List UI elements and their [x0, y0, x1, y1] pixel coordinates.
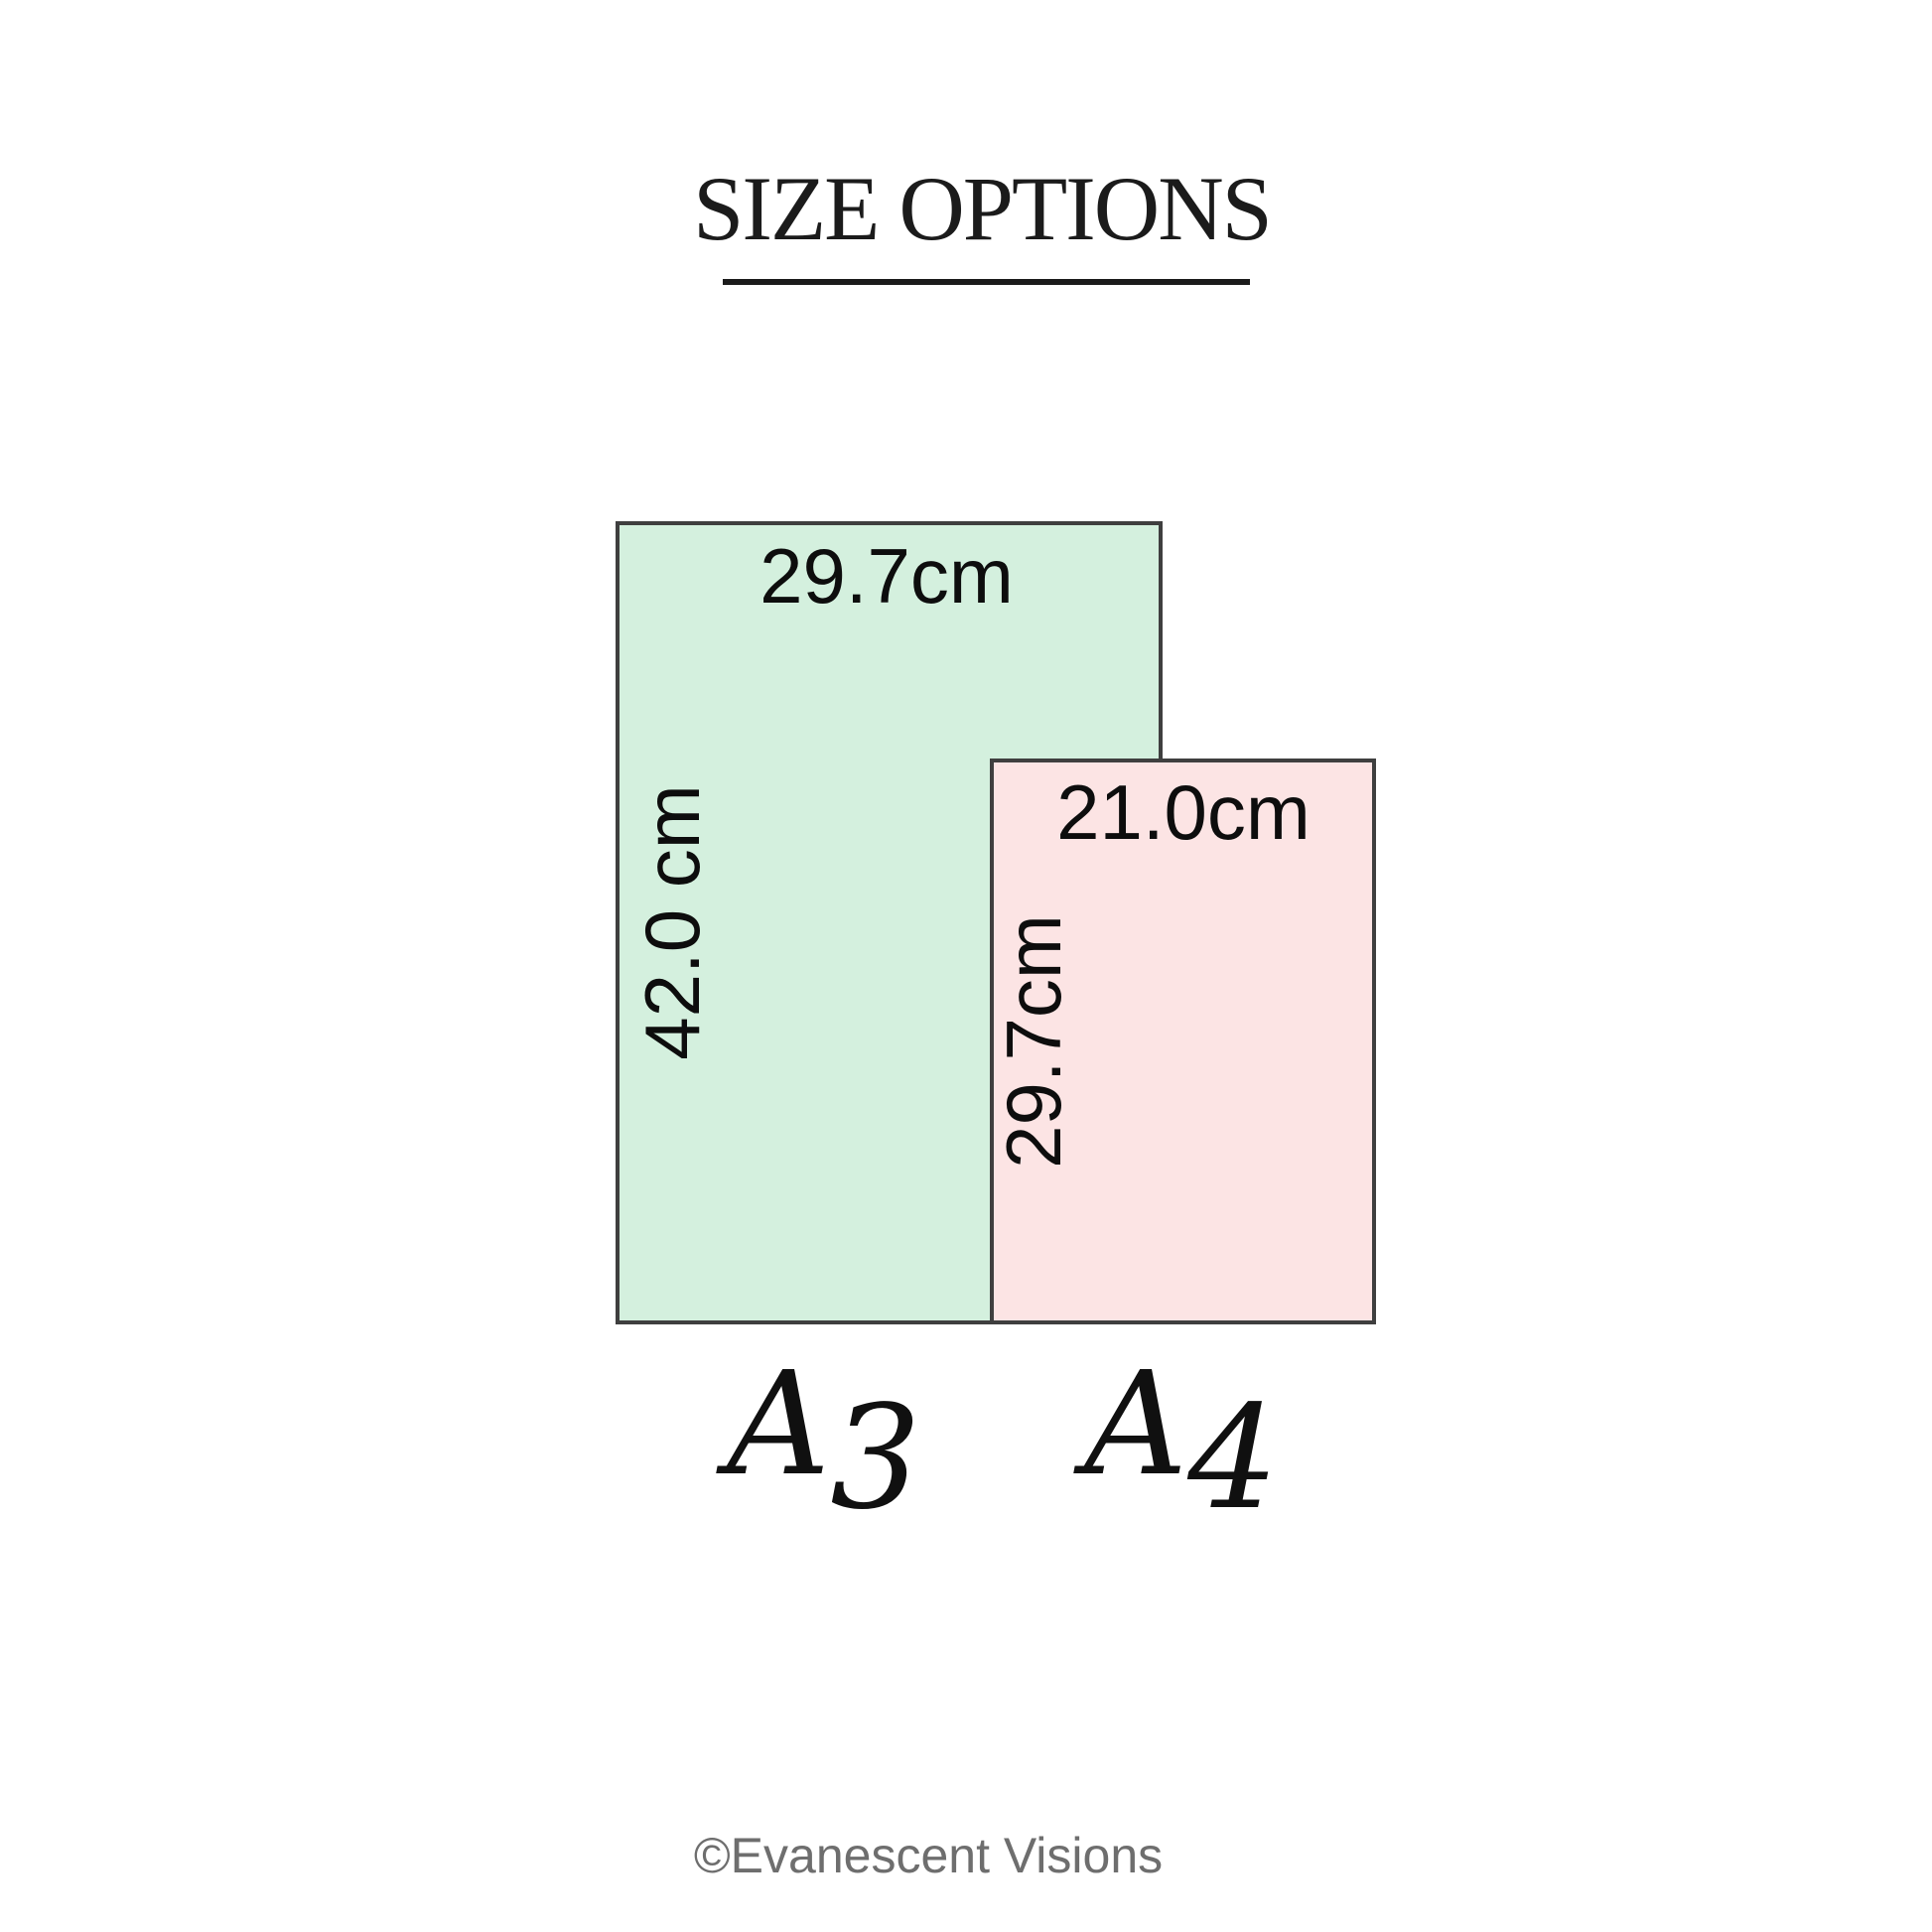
a4-height-dimension-label: 29.7cm: [995, 763, 1072, 1319]
copyright-watermark: ©Evanescent Visions: [630, 1827, 1226, 1884]
a3-width-dimension-label: 29.7cm: [688, 537, 1085, 615]
title-underline: [723, 279, 1250, 285]
a3-size-name: A3: [675, 1352, 973, 1495]
a4-digit: 4: [1187, 1374, 1279, 1541]
a3-digit: 3: [830, 1374, 921, 1541]
a4-letter: A: [1084, 1340, 1187, 1507]
a3-height-dimension-label: 42.0 cm: [633, 644, 711, 1200]
page-title: SIZE OPTIONS: [684, 163, 1280, 254]
a4-size-name: A4: [1033, 1352, 1330, 1495]
size-options-diagram: SIZE OPTIONS 29.7cm 42.0 cm 21.0cm 29.7c…: [0, 0, 1932, 1932]
a3-letter: A: [727, 1340, 830, 1507]
